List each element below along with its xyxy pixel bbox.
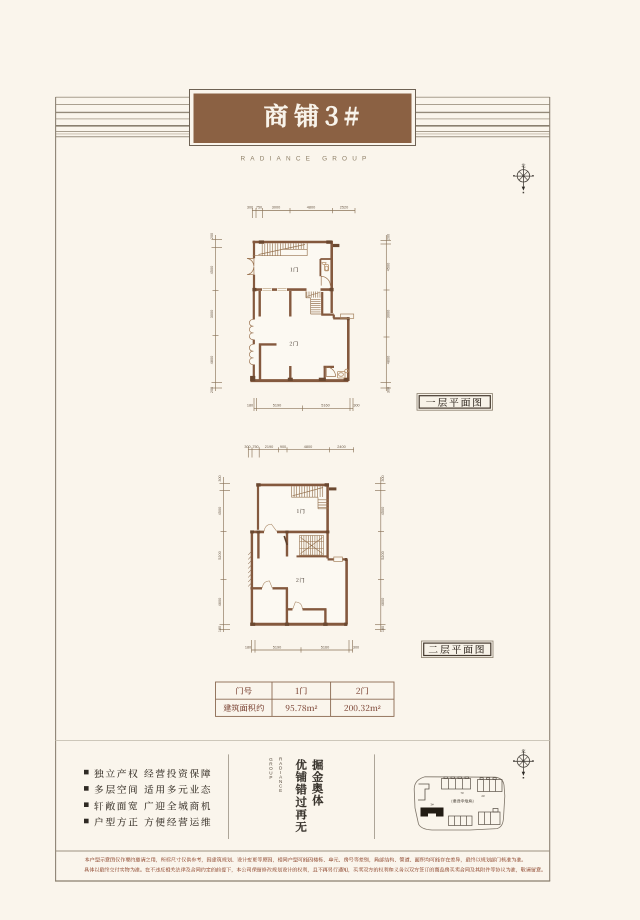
svg-text:2门: 2门	[356, 685, 370, 697]
svg-text:4800: 4800	[387, 356, 391, 364]
svg-text:95.78m²: 95.78m²	[285, 703, 317, 714]
svg-text:(建设中地块): (建设中地块)	[451, 799, 474, 805]
svg-text:二层平面图: 二层平面图	[428, 642, 486, 656]
svg-text:具体以最终交付实物为准。在不违反相关法律及合同约定的前提下，: 具体以最终交付实物为准。在不违反相关法律及合同约定的前提下，本公司保留修改规划设…	[84, 866, 546, 873]
svg-text:P: P	[269, 775, 272, 780]
svg-text:5190: 5190	[273, 645, 281, 649]
svg-text:本户型示意图仅作要约邀请之用，所标尺寸仅供参考，因建筑规划、: 本户型示意图仅作要约邀请之用，所标尺寸仅供参考，因建筑规划、设计变更等原因，相同…	[85, 857, 527, 864]
svg-text:200: 200	[210, 387, 214, 393]
svg-text:2400: 2400	[337, 445, 345, 449]
svg-text:180: 180	[381, 626, 385, 632]
svg-text:2#: 2#	[481, 794, 485, 798]
svg-text:2门: 2门	[296, 577, 305, 584]
svg-text:户型方正 方便经营运维: 户型方正 方便经营运维	[94, 815, 212, 829]
svg-text:3000: 3000	[210, 310, 214, 318]
svg-text:多层空间 适用多元业态: 多层空间 适用多元业态	[94, 782, 212, 796]
svg-text:2190: 2190	[265, 445, 273, 449]
svg-text:300: 300	[247, 206, 253, 210]
svg-text:一层平面图: 一层平面图	[426, 395, 484, 409]
svg-text:300: 300	[353, 404, 359, 408]
svg-text:RADIANCE GROUP: RADIANCE GROUP	[240, 156, 371, 163]
svg-text:5200: 5200	[218, 551, 222, 559]
svg-text:4500: 4500	[218, 507, 222, 515]
svg-text:180: 180	[218, 626, 222, 632]
svg-text:1门: 1门	[295, 685, 308, 697]
svg-text:E: E	[279, 788, 282, 793]
svg-text:3#: 3#	[430, 803, 434, 807]
svg-text:门号: 门号	[235, 685, 252, 697]
svg-text:300: 300	[381, 475, 385, 481]
svg-text:7#: 7#	[460, 791, 464, 795]
svg-text:300: 300	[353, 645, 359, 649]
svg-text:4500: 4500	[210, 266, 214, 274]
svg-text:300: 300	[218, 475, 222, 481]
svg-text:2520: 2520	[340, 206, 348, 210]
svg-text:4600: 4600	[218, 598, 222, 606]
svg-text:4600: 4600	[381, 598, 385, 606]
svg-text:750: 750	[256, 206, 262, 210]
svg-text:200: 200	[210, 233, 214, 239]
svg-text:300: 300	[387, 387, 391, 393]
svg-text:5160: 5160	[321, 645, 329, 649]
svg-text:体: 体	[312, 792, 324, 808]
svg-text:无: 无	[296, 819, 308, 835]
svg-text:200.32m²: 200.32m²	[344, 703, 381, 714]
svg-text:3000: 3000	[387, 310, 391, 318]
svg-text:建筑面积约: 建筑面积约	[222, 703, 265, 714]
svg-text:900: 900	[280, 445, 286, 449]
svg-text:5200: 5200	[381, 551, 385, 559]
svg-text:4800: 4800	[210, 356, 214, 364]
svg-text:4800: 4800	[307, 206, 315, 210]
svg-text:200: 200	[387, 234, 391, 240]
svg-text:180: 180	[245, 645, 251, 649]
svg-text:3000: 3000	[272, 206, 280, 210]
svg-text:5160: 5160	[321, 404, 329, 408]
svg-text:300: 300	[244, 445, 250, 449]
svg-text:2门: 2门	[289, 340, 298, 347]
svg-text:商铺3#: 商铺3#	[264, 97, 365, 133]
svg-text:轩敞面宽 广迎全城商机: 轩敞面宽 广迎全城商机	[94, 798, 212, 812]
svg-text:4800: 4800	[304, 445, 312, 449]
svg-text:独立产权 经营投资保障: 独立产权 经营投资保障	[94, 766, 212, 780]
svg-text:180: 180	[247, 404, 253, 408]
svg-text:5190: 5190	[273, 404, 281, 408]
svg-text:750: 750	[252, 445, 258, 449]
svg-text:4500: 4500	[387, 263, 391, 271]
svg-text:4500: 4500	[381, 507, 385, 515]
svg-text:1门: 1门	[297, 508, 306, 515]
svg-text:1门: 1门	[290, 267, 299, 274]
